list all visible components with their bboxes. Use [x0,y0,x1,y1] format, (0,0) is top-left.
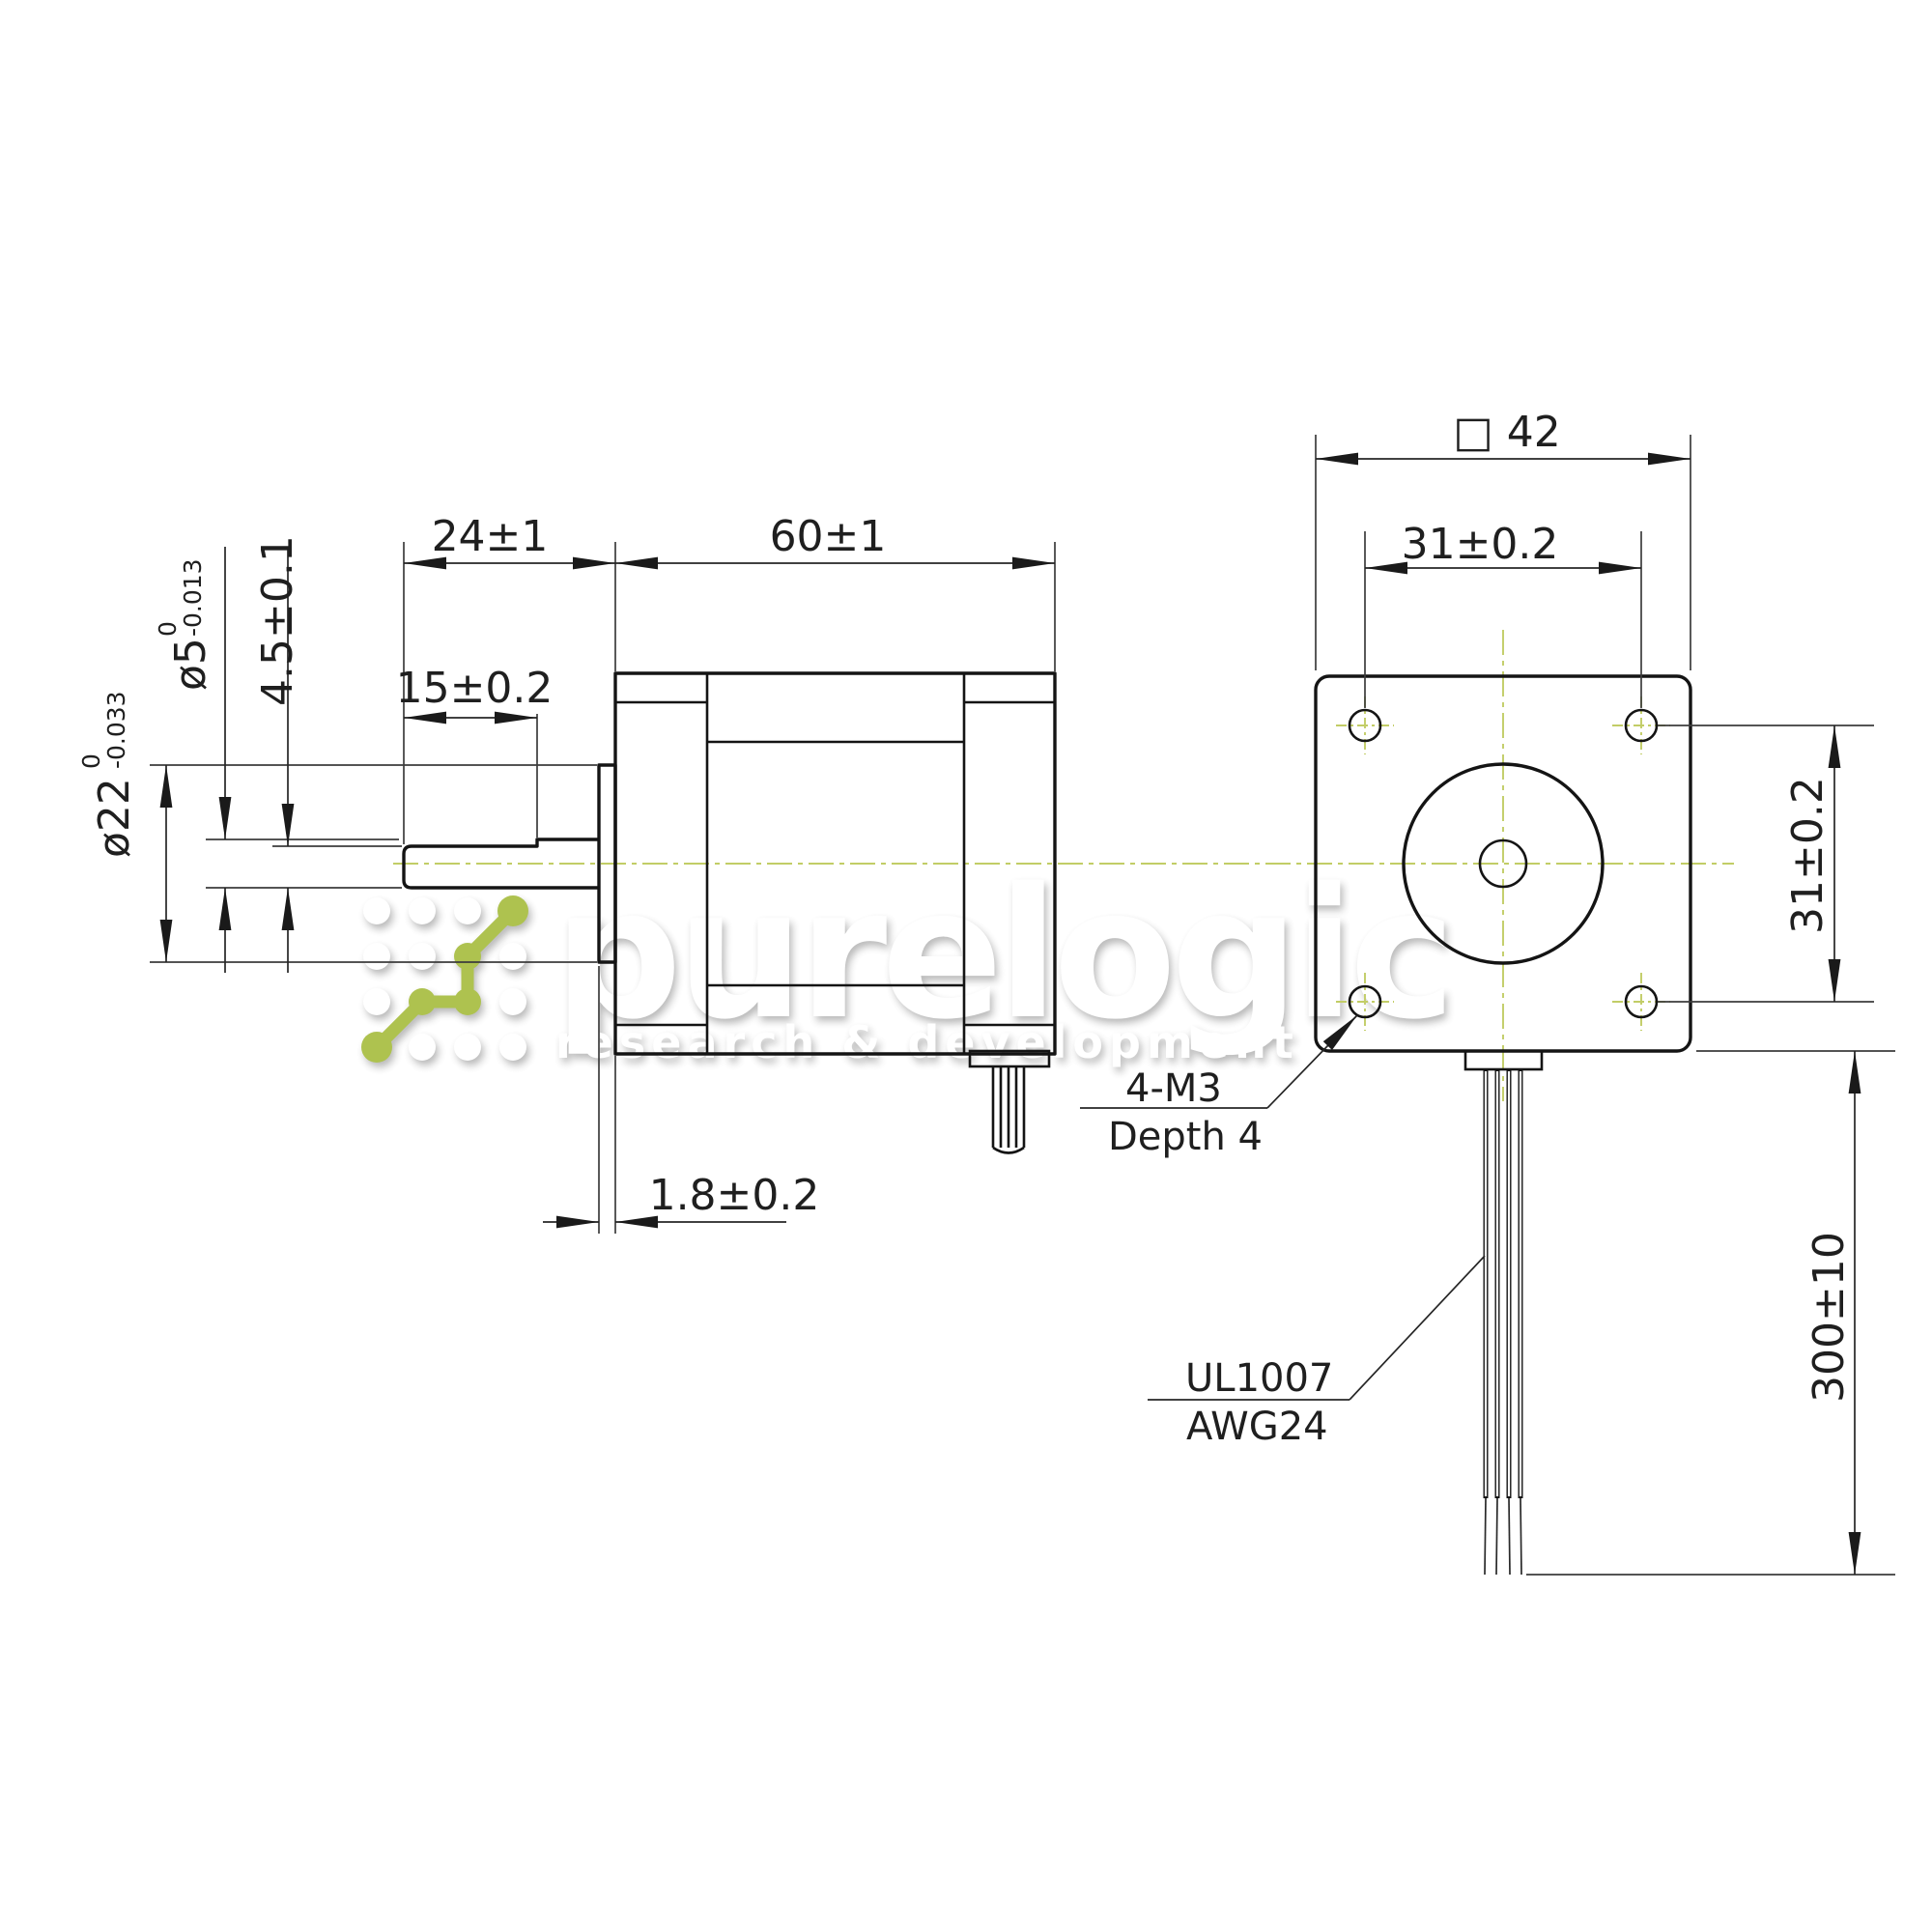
dim-flat-length: 15±0.2 [396,664,554,713]
note-mounting-line1: 4-M3 [1125,1066,1222,1111]
note-wire-line1: UL1007 [1185,1356,1333,1401]
wire-spec-note: UL1007 AWG24 [1148,1256,1485,1449]
dim-shaft-diameter: ø5 0 -0.013 [154,558,215,691]
dim-frame-size: □ 42 [1453,408,1561,457]
svg-text:300±10: 300±10 [1804,1232,1854,1403]
dim-flat-height: 4.5±0.1 [253,535,302,706]
dim-hole-spacing-horizontal: 31±0.2 [1402,520,1559,569]
wire-exit-stub-side [970,1051,1049,1153]
svg-text:ø5: ø5 [166,638,215,691]
svg-text:ø22: ø22 [90,778,139,858]
watermark: purelogic research & development [361,849,1450,1068]
dim-shaft-length: 24±1 [432,512,549,561]
svg-text:-0.033: -0.033 [102,691,130,769]
note-mounting-line2: Depth 4 [1108,1115,1263,1159]
svg-text:31±0.2: 31±0.2 [1783,777,1833,934]
svg-text:0: 0 [77,753,105,769]
dim-pilot-depth: 1.8±0.2 [649,1171,820,1220]
svg-text:0: 0 [154,621,182,637]
dim-lead-length: 300±10 [1804,1232,1854,1403]
dim-pilot-diameter: ø22 0 -0.033 [77,691,139,858]
motor-dimension-drawing: purelogic research & development [0,0,1932,1932]
dim-hole-spacing-vertical: 31±0.2 [1783,777,1833,934]
svg-text:4.5±0.1: 4.5±0.1 [253,535,302,706]
watermark-green-arrow-icon [361,895,528,1063]
note-wire-line2: AWG24 [1186,1405,1328,1449]
watermark-logo-dot-grid-icon [361,895,528,1063]
lead-wires [1485,1069,1521,1575]
technical-drawing-page: purelogic research & development [0,0,1932,1932]
svg-text:-0.013: -0.013 [179,558,207,637]
dim-body-length: 60±1 [770,512,887,561]
